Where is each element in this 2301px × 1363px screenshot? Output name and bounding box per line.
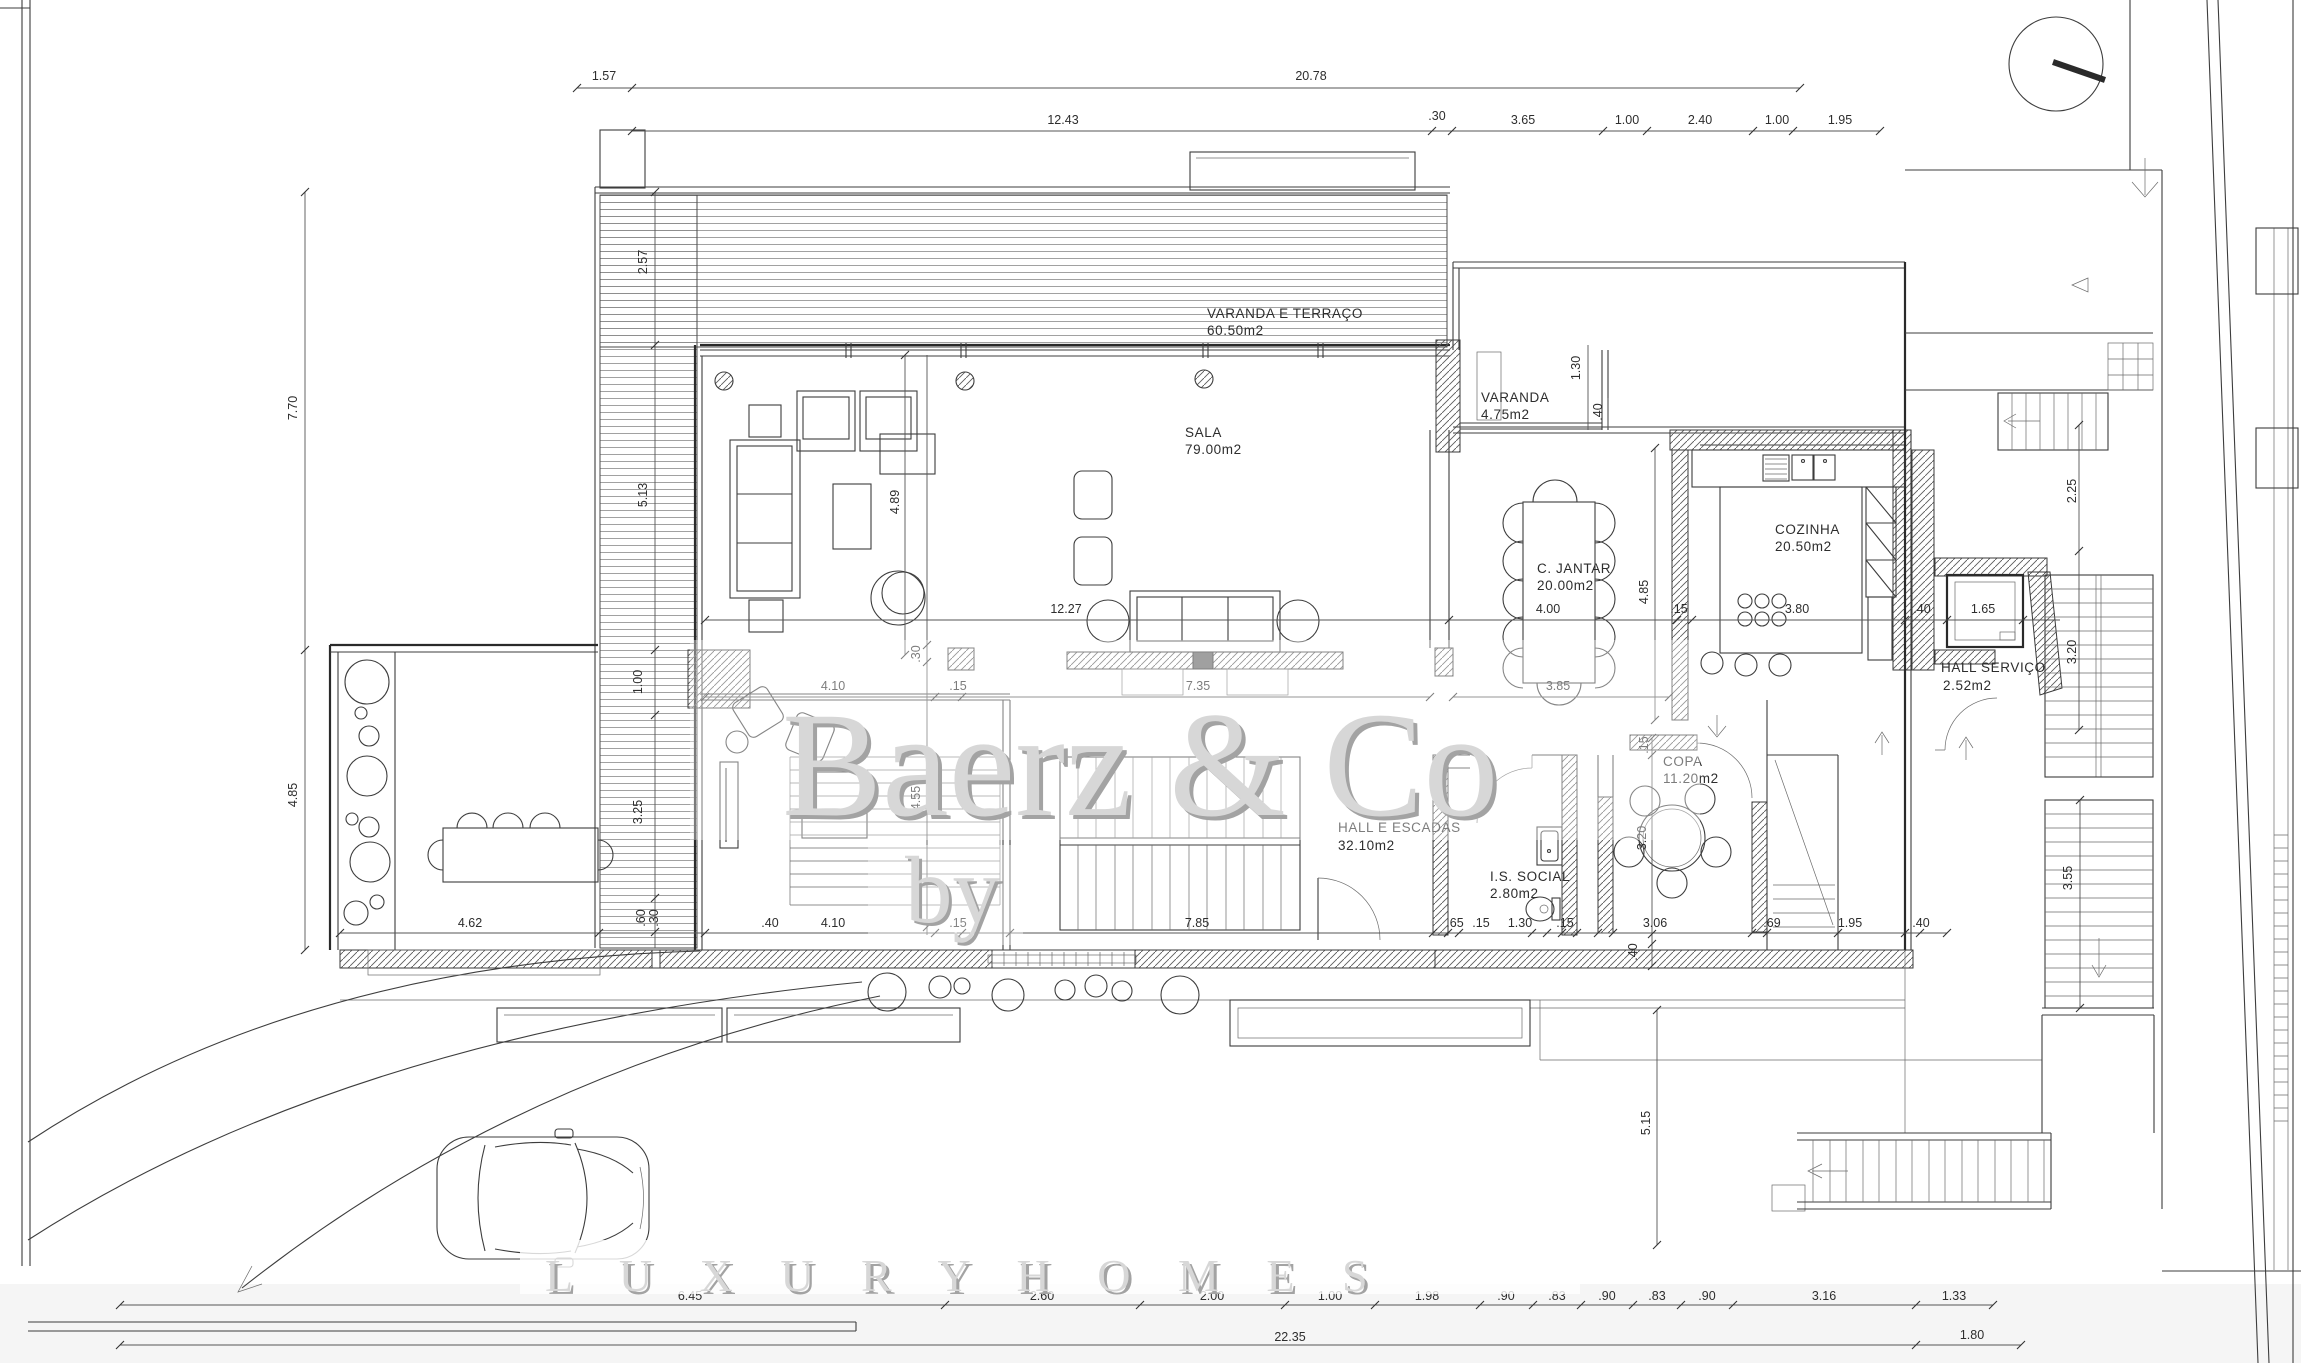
room-label-hall-servico: HALL SERVIÇO xyxy=(1941,660,2046,675)
room-label-cozinha: COZINHA xyxy=(1775,522,1840,537)
dim-label: 1.00 xyxy=(1615,113,1639,127)
room-label-is-social: I.S. SOCIAL xyxy=(1490,869,1570,884)
dim-label: 1.33 xyxy=(1942,1289,1966,1303)
dim-label: 7.70 xyxy=(286,396,300,420)
dim-label: .40 xyxy=(761,916,778,930)
dim-label: 1.95 xyxy=(1838,916,1862,930)
dim-label: .15 xyxy=(1472,916,1489,930)
dim-label: .60 xyxy=(634,909,648,926)
dim-label: 1.00 xyxy=(631,670,645,694)
patio-left xyxy=(330,645,613,950)
dim-label: 3.16 xyxy=(1812,1289,1836,1303)
dim-label: 1.00 xyxy=(1765,113,1789,127)
room-area-jantar: 20.00m2 xyxy=(1537,578,1594,593)
boundary-ladder xyxy=(2274,835,2288,1121)
dim-label: 1.95 xyxy=(1828,113,1852,127)
dim-label: .40 xyxy=(1591,403,1605,420)
dim-label: 1.30 xyxy=(1508,916,1532,930)
watermark-by: by xyxy=(905,837,1001,943)
dim-label: 3.25 xyxy=(631,800,645,824)
dim-label: .40 xyxy=(1626,943,1640,960)
room-label-terrace: VARANDA E TERRAÇO xyxy=(1207,306,1363,321)
dim-label: 1.30 xyxy=(1569,356,1583,380)
room-area-sala: 79.00m2 xyxy=(1185,442,1242,457)
dim-label: .65 xyxy=(1446,916,1463,930)
dim-label: 4.62 xyxy=(458,916,482,930)
dim-label: 7.85 xyxy=(1185,916,1209,930)
dim-label: .90 xyxy=(1598,1289,1615,1303)
dim-label: 3.65 xyxy=(1511,113,1535,127)
dim-label: 4.00 xyxy=(1536,602,1560,616)
room-area-hall-servico: 2.52m2 xyxy=(1943,678,1992,693)
dim-label: 1.80 xyxy=(1960,1328,1984,1342)
dim-label: 20.78 xyxy=(1295,69,1326,83)
dim-label: .30 xyxy=(1428,109,1445,123)
room-label-jantar: C. JANTAR xyxy=(1537,561,1611,576)
dim-label: 1.57 xyxy=(592,69,616,83)
dim-label: 2.57 xyxy=(636,250,650,274)
dim-label: 2.25 xyxy=(2065,479,2079,503)
dim-label: 3.06 xyxy=(1643,916,1667,930)
dim-label: 5.13 xyxy=(636,483,650,507)
dim-label: 12.27 xyxy=(1050,602,1081,616)
dim-label: 1.65 xyxy=(1971,602,1995,616)
dim-label: 3.20 xyxy=(2065,640,2079,664)
watermark-tagline: L U X U R Y H O M E S xyxy=(545,1250,1386,1301)
dim-label: 4.89 xyxy=(888,490,902,514)
dim-label: 3.55 xyxy=(2061,866,2075,890)
watermark: by by Baerz & Co Baerz & Co L U X U R Y … xyxy=(520,640,1700,1304)
room-area-is-social: 2.80m2 xyxy=(1490,886,1539,901)
dim-label: .40 xyxy=(1913,602,1930,616)
planter-circles xyxy=(344,660,390,925)
dim-label: 4.85 xyxy=(286,783,300,807)
dim-label: .90 xyxy=(1698,1289,1715,1303)
room-area-varanda: 4.75m2 xyxy=(1481,407,1530,422)
north-arrow-icon xyxy=(2009,17,2105,111)
dim-label: 3.80 xyxy=(1785,602,1809,616)
dim-label: .40 xyxy=(1912,916,1929,930)
dim-label: 4.85 xyxy=(1637,580,1651,604)
room-area-terrace: 60.50m2 xyxy=(1207,323,1264,338)
watermark-brand: Baerz & Co xyxy=(782,682,1498,848)
dim-label: .83 xyxy=(1648,1289,1665,1303)
floor-plan-canvas: 1.57 20.78 12.43 .30 3.65 1.00 2.40 1.00… xyxy=(0,0,2301,1363)
dim-label: .15 xyxy=(1670,602,1687,616)
dim-label: .30 xyxy=(647,909,661,926)
kitchen xyxy=(1692,450,1905,676)
dim-label: .15 xyxy=(1556,916,1573,930)
dim-label: 4.10 xyxy=(821,916,845,930)
room-area-cozinha: 20.50m2 xyxy=(1775,539,1832,554)
dim-label: 22.35 xyxy=(1274,1330,1305,1344)
stairs-exterior xyxy=(1797,333,2154,1209)
floorplan-page: 1.57 20.78 12.43 .30 3.65 1.00 2.40 1.00… xyxy=(0,0,2301,1363)
dim-label: .69 xyxy=(1763,916,1780,930)
dim-label: 12.43 xyxy=(1047,113,1078,127)
patio-table xyxy=(428,813,613,882)
entrance-arrow-icon xyxy=(2132,158,2158,197)
room-label-varanda: VARANDA xyxy=(1481,390,1549,405)
dim-label: 5.15 xyxy=(1639,1111,1653,1135)
room-label-sala: SALA xyxy=(1185,425,1222,440)
dim-label: 2.40 xyxy=(1688,113,1712,127)
